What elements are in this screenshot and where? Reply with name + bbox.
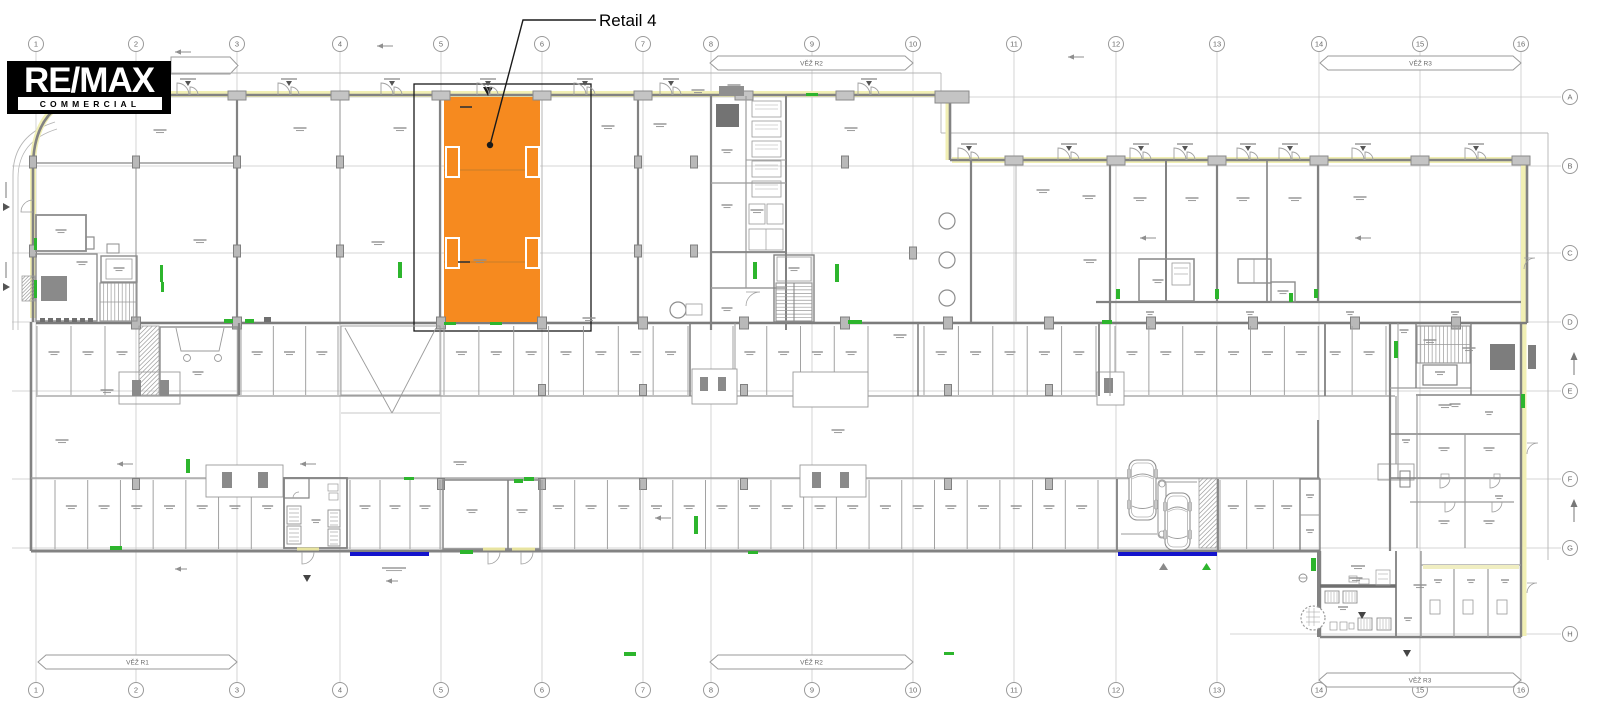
svg-text:4: 4	[338, 686, 342, 695]
svg-text:VĚŽ R3: VĚŽ R3	[1409, 675, 1432, 684]
svg-text:14: 14	[1315, 40, 1323, 49]
svg-text:VĚŽ R2: VĚŽ R2	[800, 58, 823, 67]
svg-text:RE/MAX: RE/MAX	[24, 61, 156, 100]
svg-text:7: 7	[641, 686, 645, 695]
svg-text:7: 7	[641, 40, 645, 49]
svg-text:10: 10	[909, 686, 917, 695]
svg-text:15: 15	[1416, 40, 1424, 49]
svg-text:5: 5	[439, 40, 443, 49]
svg-text:8: 8	[709, 686, 713, 695]
svg-text:9: 9	[810, 40, 814, 49]
svg-text:16: 16	[1517, 686, 1525, 695]
svg-text:D: D	[1567, 318, 1573, 327]
svg-text:VĚŽ R2: VĚŽ R2	[800, 657, 823, 666]
svg-text:11: 11	[1010, 686, 1018, 695]
svg-text:4: 4	[338, 40, 342, 49]
svg-text:E: E	[1567, 387, 1572, 396]
svg-text:1: 1	[34, 686, 38, 695]
svg-text:6: 6	[540, 40, 544, 49]
svg-text:B: B	[1567, 162, 1572, 171]
svg-text:C: C	[1567, 249, 1573, 258]
svg-text:COMMERCIAL: COMMERCIAL	[40, 99, 141, 109]
svg-text:16: 16	[1517, 40, 1525, 49]
svg-text:13: 13	[1213, 686, 1221, 695]
svg-text:2: 2	[134, 686, 138, 695]
svg-text:Retail 4: Retail 4	[599, 11, 657, 30]
svg-text:H: H	[1567, 630, 1572, 639]
svg-text:1: 1	[34, 40, 38, 49]
svg-text:13: 13	[1213, 40, 1221, 49]
svg-text:6: 6	[540, 686, 544, 695]
svg-text:12: 12	[1112, 40, 1120, 49]
svg-text:5: 5	[439, 686, 443, 695]
svg-text:9: 9	[810, 686, 814, 695]
svg-text:3: 3	[235, 40, 239, 49]
svg-text:14: 14	[1315, 686, 1323, 695]
svg-text:2: 2	[134, 40, 138, 49]
svg-text:3: 3	[235, 686, 239, 695]
svg-text:12: 12	[1112, 686, 1120, 695]
svg-text:VĚŽ R1: VĚŽ R1	[126, 657, 149, 666]
svg-text:A: A	[1567, 93, 1572, 102]
svg-text:F: F	[1568, 475, 1573, 484]
svg-text:VĚŽ R3: VĚŽ R3	[1409, 58, 1432, 67]
svg-text:11: 11	[1010, 40, 1018, 49]
svg-text:G: G	[1567, 544, 1573, 553]
svg-text:8: 8	[709, 40, 713, 49]
svg-text:10: 10	[909, 40, 917, 49]
